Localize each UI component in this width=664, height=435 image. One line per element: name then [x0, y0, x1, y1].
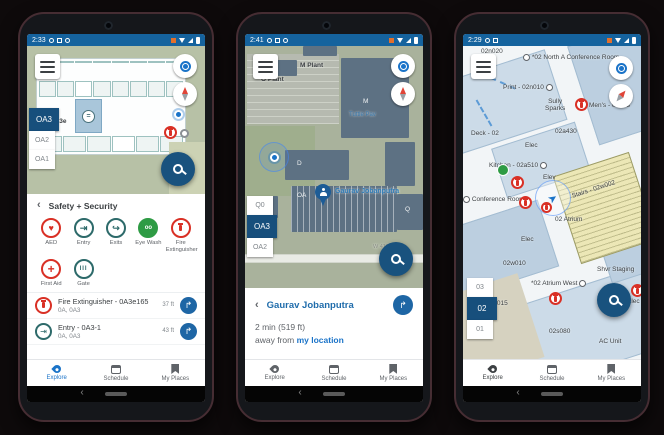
directions-button[interactable]: ↱: [180, 323, 197, 340]
gate-icon: III: [74, 259, 94, 279]
notification-icon: [493, 38, 498, 43]
notification-icon: [57, 38, 62, 43]
search-icon: [173, 164, 183, 174]
status-bar: 2:29: [463, 34, 641, 46]
status-bar: 2:41: [245, 34, 423, 46]
calendar-icon: [547, 365, 557, 374]
map-label: Shvr Staging: [597, 266, 634, 273]
compass-button[interactable]: [173, 82, 197, 106]
panel-header: ‹ Gaurav Jobanputra ↱: [255, 295, 413, 315]
menu-button[interactable]: [253, 54, 278, 79]
locate-icon: [180, 61, 191, 72]
status-time: 2:33: [32, 37, 46, 44]
map-label: Elec: [521, 236, 534, 243]
person-pin[interactable]: [315, 184, 331, 200]
phone-1-screen: 2:33 = 0A3e: [27, 34, 205, 402]
battery-icon: [414, 37, 418, 44]
tab-my-places[interactable]: My Places: [582, 364, 641, 382]
map-label: M Plant: [300, 62, 323, 69]
result-subtitle: 0A, 0A3: [58, 333, 156, 340]
locate-me-button[interactable]: [391, 54, 415, 78]
fire-extinguisher-marker[interactable]: [549, 292, 562, 305]
poi-marker[interactable]: [180, 129, 189, 138]
indoor-floorplan-map[interactable]: 02n020 *02 North A Conference Room Print…: [463, 46, 641, 359]
bookmark-icon: [389, 364, 397, 374]
map-label: 02w010: [503, 260, 526, 267]
notification-icon: [267, 38, 272, 43]
elevator-room[interactable]: =: [75, 99, 102, 133]
android-home-pill[interactable]: [105, 392, 127, 396]
phone-2: 2:41 M Plant O Plant M Tuttle P: [236, 12, 432, 422]
map-label: 02s080: [549, 328, 570, 335]
compass-icon: [614, 89, 628, 104]
calendar-icon: [329, 365, 339, 374]
back-icon[interactable]: ‹: [255, 300, 259, 311]
current-location-dot: [270, 153, 279, 162]
first-aid-icon: +: [41, 259, 61, 279]
android-back-icon[interactable]: ‹: [516, 388, 519, 398]
status-bar: 2:33: [27, 34, 205, 46]
bookmark-icon: [171, 364, 179, 374]
status-app-icon: [607, 38, 612, 43]
notification-icon: [275, 38, 280, 43]
result-title: Fire Extinguisher - 0A3e165: [58, 297, 156, 306]
map-label: Deck - 02: [471, 130, 499, 137]
android-back-icon[interactable]: ‹: [298, 388, 301, 398]
fire-extinguisher-marker[interactable]: [631, 284, 641, 297]
search-fab[interactable]: [597, 283, 631, 317]
compass-icon: [182, 87, 188, 101]
floor-selector: Q0 OA3 OA2: [247, 196, 277, 257]
bottom-navigation: Explore Schedule My Places: [245, 359, 423, 386]
location-accuracy-halo: [259, 142, 289, 172]
indoor-map[interactable]: = 0A3e OA3 OA2 OA1: [27, 46, 205, 194]
room-poi-icon: [463, 196, 470, 203]
map-label: SullySparks: [545, 98, 565, 112]
signal-icon: [188, 38, 193, 43]
directions-button[interactable]: ↱: [393, 295, 413, 315]
map-label: Conference Room: [463, 196, 525, 203]
floor-chip-oa3[interactable]: OA3: [29, 108, 59, 131]
tab-schedule[interactable]: Schedule: [86, 365, 145, 382]
notification-icon: [49, 38, 54, 43]
panel-header: ‹ Safety + Security: [27, 194, 205, 213]
bottom-navigation: Explore Schedule My Places: [27, 359, 205, 386]
tab-my-places[interactable]: My Places: [364, 364, 423, 382]
wifi-icon: [615, 38, 621, 43]
room-poi-icon: [579, 280, 586, 287]
phone-2-screen: 2:41 M Plant O Plant M Tuttle P: [245, 34, 423, 402]
eye-wash-marker[interactable]: [497, 164, 509, 176]
camera-dot: [540, 21, 549, 30]
locate-me-button[interactable]: [173, 54, 197, 78]
status-app-icon: [171, 38, 176, 43]
calendar-icon: [111, 365, 121, 374]
tab-explore[interactable]: Explore: [27, 365, 86, 381]
result-distance: 37 ft: [162, 302, 174, 308]
category-grid: ♥ AED ⇥ Entry ↪ Exits oo Eye Wash Fir: [27, 213, 205, 292]
fire-extinguisher-marker[interactable]: [519, 196, 532, 209]
fire-extinguisher-marker[interactable]: [164, 126, 177, 139]
building-d: [285, 150, 349, 180]
results-list: Fire Extinguisher - 0A3e165 0A, 0A3 37 f…: [27, 292, 205, 345]
search-fab[interactable]: [379, 242, 413, 276]
wifi-icon: [179, 38, 185, 43]
building: [385, 142, 415, 186]
map-label: *02 Atrium West: [531, 280, 586, 287]
bottom-navigation: Explore Schedule My Places: [463, 359, 641, 386]
floor-chip-oa2[interactable]: OA2: [247, 238, 273, 257]
tab-explore[interactable]: Explore: [245, 365, 304, 381]
current-location-dot: [174, 110, 183, 119]
panel-title: Safety + Security: [49, 201, 118, 211]
floor-selector: OA3 OA2 OA1: [29, 108, 59, 169]
map-label: 02a430: [555, 128, 577, 135]
route-panel: ‹ Gaurav Jobanputra ↱ 2 min (519 ft) awa…: [245, 288, 423, 359]
route-origin: away from my location: [255, 335, 413, 345]
map-label: Print - 02n010: [503, 84, 553, 91]
notification-icon: [65, 38, 70, 43]
eye-wash-icon: oo: [138, 218, 158, 238]
phone-3-screen: 2:29 02n020 *02 North A Conference Room …: [463, 34, 641, 402]
my-location-link[interactable]: my location: [297, 335, 344, 345]
status-time: 2:41: [250, 37, 264, 44]
person-icon: [320, 188, 327, 196]
directions-button[interactable]: ↱: [180, 297, 197, 314]
campus-map[interactable]: M Plant O Plant M Tuttle Pav D OA J Q W …: [245, 46, 423, 288]
category-exits[interactable]: ↪ Exits: [100, 218, 132, 253]
route-eta: 2 min (519 ft): [255, 322, 413, 332]
category-aed[interactable]: ♥ AED: [35, 218, 67, 253]
android-nav-bar: ‹: [27, 386, 205, 402]
map-label: D: [297, 160, 302, 167]
compass-button[interactable]: [391, 82, 415, 106]
menu-button[interactable]: [471, 54, 496, 79]
entry-icon: ⇥: [35, 323, 52, 340]
camera-dot: [322, 21, 331, 30]
floor-chip-oa3[interactable]: OA3: [247, 215, 277, 238]
safety-security-panel: ‹ Safety + Security ♥ AED ⇥ Entry ↪ Exit…: [27, 194, 205, 359]
compass-icon: [400, 87, 406, 101]
result-title: Entry - 0A3-1: [58, 323, 156, 332]
search-icon: [391, 254, 401, 264]
tab-my-places[interactable]: My Places: [146, 364, 205, 382]
entry-icon: ⇥: [74, 218, 94, 238]
status-time: 2:29: [468, 37, 482, 44]
category-fire-extinguisher[interactable]: Fire Extinguisher: [165, 218, 197, 253]
floor-chip-03[interactable]: 03: [467, 278, 493, 297]
fire-extinguisher-icon: [171, 218, 191, 238]
category-eye-wash[interactable]: oo Eye Wash: [132, 218, 164, 253]
battery-icon: [632, 37, 636, 44]
category-gate[interactable]: III Gate: [67, 259, 99, 288]
exits-icon: ↪: [106, 218, 126, 238]
floor-chip-01[interactable]: 01: [467, 320, 493, 339]
result-distance: 43 ft: [162, 328, 174, 334]
fire-extinguisher-icon: [35, 297, 52, 314]
map-label: M: [363, 98, 368, 105]
map-label: 02 Atrium: [555, 216, 582, 223]
android-nav-bar: ‹: [463, 386, 641, 402]
tab-explore[interactable]: Explore: [463, 365, 522, 381]
room-poi-icon: [523, 54, 530, 61]
room-poi-icon: [540, 162, 547, 169]
panel-title: Gaurav Jobanputra: [267, 300, 385, 311]
explore-pin-icon: [51, 363, 62, 374]
map-label: Q: [405, 206, 410, 213]
status-app-icon: [389, 38, 394, 43]
signal-icon: [406, 38, 411, 43]
locate-me-button[interactable]: [609, 56, 633, 80]
locate-icon: [616, 63, 627, 74]
tab-schedule[interactable]: Schedule: [522, 365, 581, 382]
compass-button[interactable]: [609, 84, 633, 108]
wifi-icon: [397, 38, 403, 43]
location-accuracy-halo: ➤: [535, 180, 571, 216]
camera-dot: [104, 21, 113, 30]
floor-chip-oa1[interactable]: OA1: [29, 150, 55, 169]
fire-extinguisher-marker[interactable]: [511, 176, 524, 189]
elevator-icon: =: [82, 110, 95, 123]
phone-3: 2:29 02n020 *02 North A Conference Room …: [454, 12, 650, 422]
map-label: Elec: [525, 142, 538, 149]
map-label: Tuttle Pav: [349, 112, 376, 118]
map-label: OA: [297, 192, 306, 199]
result-subtitle: 0A, 0A3: [58, 307, 156, 314]
android-back-icon[interactable]: ‹: [80, 388, 83, 398]
android-home-pill[interactable]: [541, 392, 563, 396]
explore-pin-icon: [487, 363, 498, 374]
floor-chip-02[interactable]: 02: [467, 297, 497, 320]
bookmark-icon: [607, 364, 615, 374]
floor-chip-q0[interactable]: Q0: [247, 196, 273, 215]
tab-schedule[interactable]: Schedule: [304, 365, 363, 382]
map-label: *02 North A Conference Room: [523, 54, 619, 61]
battery-icon: [196, 37, 200, 44]
floor-chip-oa2[interactable]: OA2: [29, 131, 55, 150]
room-poi-icon: [546, 84, 553, 91]
category-entry[interactable]: ⇥ Entry: [67, 218, 99, 253]
fire-extinguisher-marker[interactable]: [575, 98, 588, 111]
signal-icon: [624, 38, 629, 43]
android-home-pill[interactable]: [323, 392, 345, 396]
building: [303, 46, 337, 56]
aed-icon: ♥: [41, 218, 61, 238]
notification-icon: [485, 38, 490, 43]
result-row-entry[interactable]: ⇥ Entry - 0A3-1 0A, 0A3 43 ft ↱: [27, 319, 205, 345]
back-icon[interactable]: ‹: [37, 200, 41, 211]
notification-icon: [283, 38, 288, 43]
person-pin-label: Gaurav Jobanputra: [335, 188, 399, 195]
explore-pin-icon: [269, 363, 280, 374]
menu-button[interactable]: [35, 54, 60, 79]
floor-selector: 03 02 01: [467, 278, 497, 339]
fire-extinguisher-marker[interactable]: [541, 202, 552, 213]
search-icon: [609, 295, 619, 305]
locate-icon: [398, 61, 409, 72]
category-first-aid[interactable]: + First Aid: [35, 259, 67, 288]
android-nav-bar: ‹: [245, 386, 423, 402]
search-fab[interactable]: [161, 152, 195, 186]
result-row-fire-extinguisher[interactable]: Fire Extinguisher - 0A3e165 0A, 0A3 37 f…: [27, 293, 205, 319]
map-label: AC Unit: [599, 338, 621, 345]
phone-1: 2:33 = 0A3e: [18, 12, 214, 422]
